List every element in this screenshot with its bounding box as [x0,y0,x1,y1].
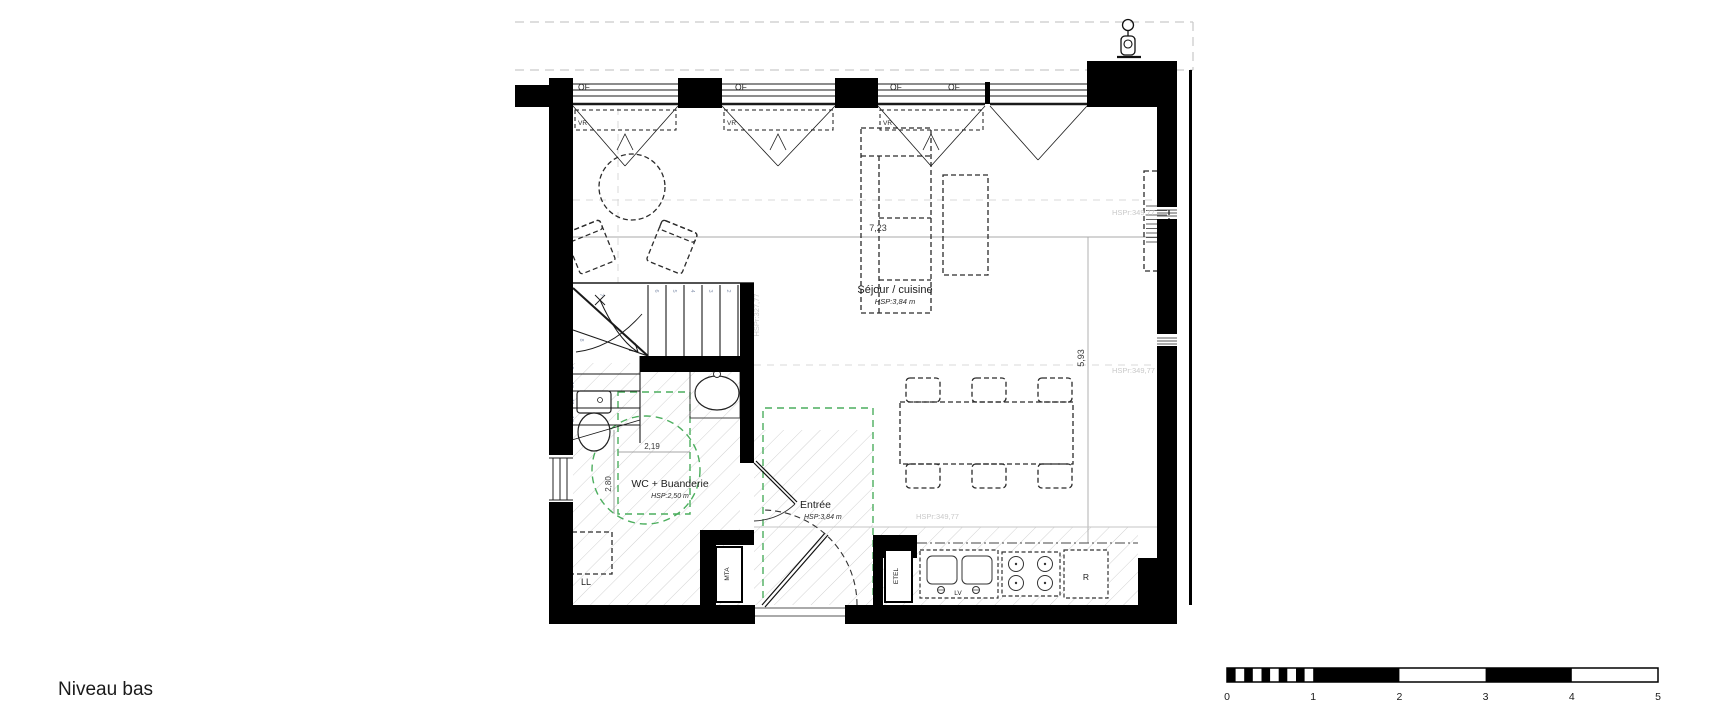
scale-label-3: 3 [1483,691,1489,703]
hob-unit [1002,552,1060,596]
window-4 [990,84,1087,160]
dining-chair [906,378,940,402]
coffee-table [943,175,988,275]
hsp-annotation-right-mid: HSPr:349,77 [1112,366,1155,375]
dining-chair [906,464,940,488]
room-hsp-wc: HSP:2,50 m [651,493,689,500]
window-3 [878,84,985,166]
toilet [577,391,611,451]
scale-label-1: 1 [1310,691,1316,703]
room-label-entree: Entrée [800,499,831,511]
meter-box-label: MTA [724,567,731,581]
scale-label-2: 2 [1396,691,1402,703]
round-table [599,154,665,220]
dim-wc-width: 2,19 [644,442,660,451]
page-title: Niveau bas [58,679,153,700]
telecom-box-label: ETEL [893,567,900,584]
window-1 [573,84,678,166]
dim-width-main: 7,23 [869,223,887,233]
sink-unit: LV [920,550,998,598]
window-label-of-2: OF [735,82,747,92]
window-2 [722,84,835,166]
fridge: R [1064,550,1108,598]
window-label-of-4: OF [948,82,960,92]
room-label-wc: WC + Buanderie [631,478,708,490]
hsp-annotation-right-top: HSPr:349,77 [1112,208,1155,217]
hsp-annotation-stairs: HSPr:327,77 [752,294,761,337]
window-label-of-1: OF [578,82,590,92]
shutter-label-vr-2: VR [727,120,736,127]
left-wall-window [549,458,573,500]
dining-table-set [900,378,1073,488]
fridge-label: R [1083,572,1089,582]
hsp-annotation-kitchen: HSPr:349,77 [916,512,959,521]
scale-label-4: 4 [1569,691,1575,703]
scale-bar: 0 1 2 3 4 5 [1224,668,1661,703]
floor-plan-page: LV R [0,0,1727,723]
svg-text:5: 5 [671,289,677,292]
dim-height-main: 5,93 [1076,349,1086,367]
svg-text:3: 3 [707,289,713,292]
dining-chair [1038,464,1072,488]
armchair-right [646,219,698,274]
svg-text:8: 8 [578,338,584,341]
room-hsp-sejour: HSP:3,84 m [875,297,915,306]
washing-machine-label: LL [581,577,591,587]
floor-plan-drawing: LV R [0,0,1727,723]
scale-label-5: 5 [1655,691,1661,703]
facade-windows [573,84,1087,166]
dining-chair [972,378,1006,402]
shutter-label-vr-1: VR [578,120,587,127]
dining-table [900,402,1073,464]
room-hsp-entree: HSP:3,84 m [804,514,842,521]
dining-chair [1038,378,1072,402]
window-label-of-3: OF [890,82,902,92]
room-label-sejour: Séjour / cuisine [857,284,932,296]
svg-text:7: 7 [598,293,604,296]
dishwasher-label: LV [954,590,962,597]
svg-text:2: 2 [725,289,731,292]
dim-wc-height: 2,80 [604,476,613,492]
svg-text:4: 4 [689,289,695,292]
shutter-label-vr-3: VR [883,120,892,127]
scale-label-0: 0 [1224,691,1230,703]
svg-text:6: 6 [653,289,659,292]
rooftop-vent-icon [1117,20,1141,58]
dining-chair [972,464,1006,488]
